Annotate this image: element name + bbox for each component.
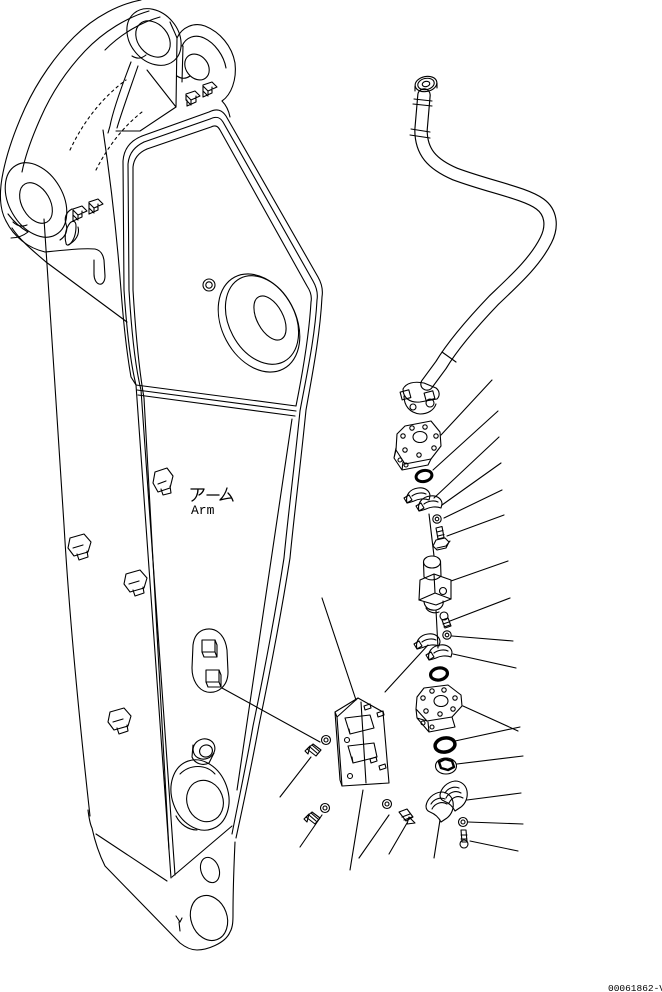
svg-text:Arm: Arm (191, 503, 215, 518)
svg-text:00061862-V: 00061862-V (608, 983, 662, 992)
